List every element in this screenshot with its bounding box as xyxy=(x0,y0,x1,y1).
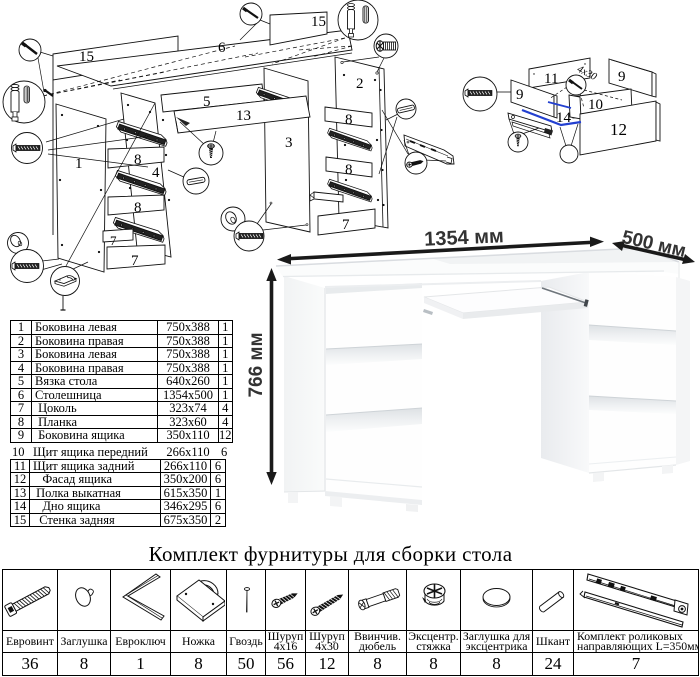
svg-text:12: 12 xyxy=(610,120,627,139)
svg-text:9: 9 xyxy=(516,87,524,103)
svg-text:8: 8 xyxy=(134,200,142,216)
svg-text:9: 9 xyxy=(618,69,626,85)
svg-text:13: 13 xyxy=(236,108,251,124)
svg-text:8: 8 xyxy=(345,112,353,128)
svg-text:10: 10 xyxy=(588,97,603,113)
svg-text:8: 8 xyxy=(345,162,353,178)
svg-text:11: 11 xyxy=(544,71,558,87)
svg-text:15: 15 xyxy=(311,14,326,30)
svg-text:7: 7 xyxy=(342,217,350,233)
svg-text:1354 мм: 1354 мм xyxy=(424,225,505,250)
svg-text:4: 4 xyxy=(152,165,160,181)
svg-text:766 мм: 766 мм xyxy=(246,332,267,397)
svg-text:2: 2 xyxy=(356,76,364,92)
svg-text:6: 6 xyxy=(218,40,226,56)
svg-text:3: 3 xyxy=(285,135,293,151)
svg-text:7: 7 xyxy=(131,253,139,269)
svg-text:7: 7 xyxy=(110,233,117,248)
